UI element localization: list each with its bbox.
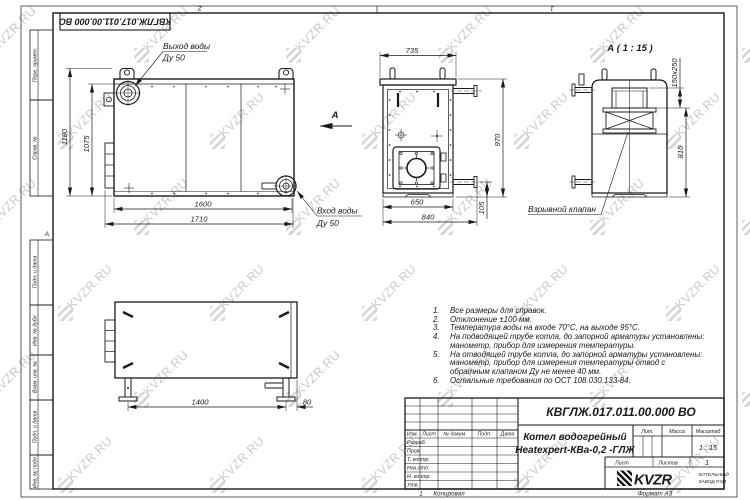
note-item: 4. На подводящей трубе котла, до запорно…: [431, 333, 705, 350]
copied-label: Копировал: [433, 491, 465, 498]
dim-150x250: 150x250: [670, 58, 679, 88]
title-designation: КВГЛЖ.017.011.00.000 ВО: [546, 405, 696, 419]
row-nachotd: Нач.отд.: [407, 466, 429, 472]
scale-value: 1 : 15: [699, 443, 718, 452]
scale-label: Масштаб: [696, 429, 722, 435]
col-sign: Подп.: [477, 432, 491, 438]
lifting-lug: [120, 69, 134, 80]
format-label: Формат А3: [638, 491, 673, 498]
row-nkontr: Н. контр.: [407, 474, 431, 480]
logo-subtext-2: ЗАВОД РЭП: [699, 479, 727, 485]
product-name-line1: Котел водогрейный: [523, 432, 626, 443]
note-number: 6.: [431, 377, 450, 386]
sheet-label: Лист: [614, 461, 629, 467]
engineering-drawing: 2 1 А 1 Копировал Формат А3 Перв. примен…: [0, 0, 750, 500]
col-izm: Изм.: [407, 432, 418, 438]
side-bracket: [104, 93, 114, 188]
side-view: 735 970 650 840 105: [380, 46, 507, 226]
row-tkontr: Т. контр.: [407, 457, 430, 463]
lug-slots: [123, 312, 289, 368]
zone-number-1: 1: [550, 5, 554, 12]
back-view-title: А ( 1 : 15 ): [606, 43, 652, 54]
note-item: 6. Остальные требования по ОСТ 108.030.1…: [431, 377, 705, 386]
margin-box-label: Взам. инв. №: [33, 361, 39, 393]
top-view-dimensions: 1400 80: [128, 380, 313, 411]
side-view-dimensions: 735 970 650 840 105: [380, 46, 507, 226]
row-utv: Утв.: [407, 483, 419, 489]
note-item: 5. На отводящей трубе котла, до запорной…: [431, 351, 705, 377]
back-view: А ( 1 : 15 ): [528, 43, 690, 215]
sheets-value: 1: [705, 458, 709, 467]
row-razrab: Разраб.: [407, 440, 426, 446]
margin-box-label: Инв. № подл.: [33, 456, 39, 488]
dim-735: 735: [406, 46, 419, 55]
front-view: 1180 1075 1600 1710 Выход воды Ду 50 Вхо…: [60, 41, 362, 228]
col-list: Лист: [421, 432, 436, 438]
flipped-designation-text: КВГЛЖ.017.011.00.000 ВО: [59, 17, 171, 27]
dim-105: 105: [477, 201, 486, 214]
margin-box-label: Подп. и дата: [33, 411, 39, 444]
outlet-dn-label: Ду 50: [162, 53, 185, 63]
dim-650: 650: [411, 198, 424, 207]
front-view-labels: Выход воды Ду 50 Вход воды Ду 50 А: [135, 41, 362, 228]
inlet-dn-label: Ду 50: [316, 218, 339, 228]
note-text: На отводящей трубе котла, до запорной ар…: [450, 351, 705, 377]
dim-810: 810: [676, 145, 685, 158]
top-view: 1400 80: [105, 302, 313, 411]
outlet-label: Выход воды: [163, 41, 210, 51]
zone-letter-a: А: [44, 231, 49, 238]
company-logo: KVZR КОТЕЛЬНЫЙ ЗАВОД РЭП: [617, 470, 729, 489]
side-pipes: [450, 86, 487, 188]
crosshair-marks: [395, 129, 443, 142]
dim-1400: 1400: [192, 398, 210, 407]
sheets-label: Листов: [657, 461, 678, 467]
col-date: Дата: [500, 432, 515, 438]
dim-840: 840: [422, 213, 435, 222]
note-number: 5.: [431, 351, 450, 377]
dim-1600: 1600: [195, 200, 213, 209]
lifting-lug: [279, 69, 293, 80]
note-text: Остальные требования по ОСТ 108.030.133-…: [450, 377, 705, 386]
drawing-sheet: KVZR.RUKVZR.RUKVZR.RUKVZR.RUKVZR.RUKVZR.…: [0, 0, 750, 500]
logo-hatch-icon: [617, 471, 632, 487]
flipped-designation-box: КВГЛЖ.017.011.00.000 ВО: [59, 13, 171, 30]
left-margin-boxes: Перв. примен. Справ. № Подп. и дата Инв.…: [30, 30, 53, 489]
inlet-label: Вход воды: [317, 206, 358, 216]
margin-box-label: Справ. №: [33, 136, 39, 160]
view-direction-letter: А: [331, 110, 339, 121]
note-text: На подводящей трубе котла, до запорной а…: [450, 333, 705, 350]
zone-number-2: 2: [198, 5, 203, 12]
dim-970: 970: [493, 133, 502, 146]
mass-label: Масса: [669, 429, 685, 435]
top-bracket: [105, 320, 115, 362]
logo-text: KVZR: [634, 473, 673, 489]
col-doc: № докум.: [443, 432, 466, 438]
dim-1180: 1180: [60, 128, 69, 145]
water-inlet-flange: [262, 175, 297, 196]
dim-80: 80: [303, 398, 312, 407]
explosion-valve-label: Взрывной клапан: [528, 204, 596, 214]
margin-box-label: Подп. и дата: [33, 256, 39, 289]
row-prov: Пров.: [407, 449, 421, 455]
margin-box-label: Инв. № дубл.: [33, 314, 39, 346]
dim-1710: 1710: [191, 215, 209, 224]
front-view-dimensions: 1180 1075 1600 1710: [60, 69, 293, 229]
burner-opening: [393, 147, 446, 189]
valve-callout: Взрывной клапан: [528, 132, 628, 215]
lit-label: Лит.: [640, 429, 653, 435]
zone-number-bottom: 1: [419, 491, 423, 498]
technical-notes: 1. Все размеры для справок. 2. Отклонени…: [431, 307, 705, 385]
bolt-dots: [151, 86, 277, 195]
product-name-line2: Heatexpert-КВа-0,2 -ГЛЖ: [515, 445, 635, 456]
explosion-valve: [603, 108, 656, 133]
dim-1075: 1075: [82, 135, 91, 153]
title-block: КВГЛЖ.017.011.00.000 ВО Котел водогрейны…: [405, 398, 729, 489]
note-number: 4.: [431, 333, 450, 350]
margin-box-label: Перв. примен.: [33, 48, 39, 82]
back-view-dimensions: 150x250 810: [649, 58, 690, 197]
